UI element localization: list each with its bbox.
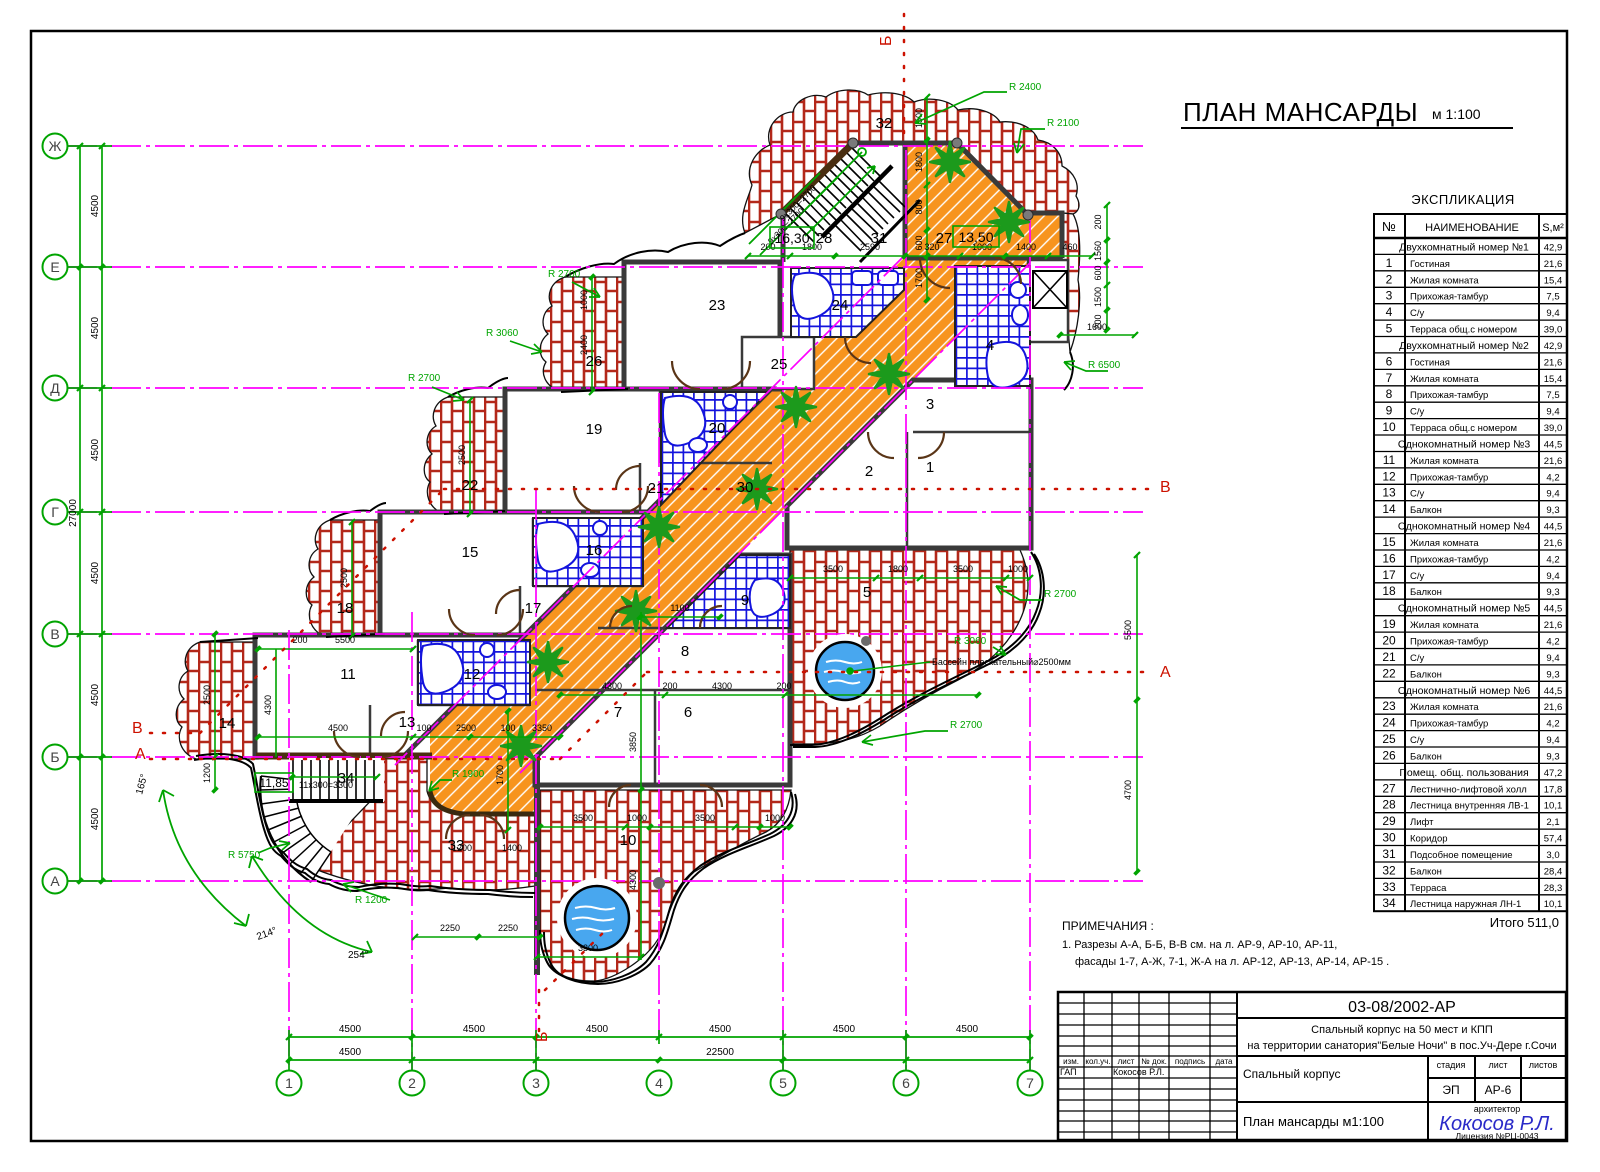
svg-text:№: № xyxy=(1382,219,1396,234)
svg-text:Спальный корпус на 50 мест и К: Спальный корпус на 50 мест и КПП xyxy=(1311,1024,1493,1036)
svg-text:15: 15 xyxy=(1382,535,1396,549)
svg-text:21,6: 21,6 xyxy=(1544,456,1563,467)
svg-text:4: 4 xyxy=(655,1075,663,1091)
svg-text:7: 7 xyxy=(614,704,622,721)
svg-text:Балкон: Балкон xyxy=(1410,866,1442,877)
svg-text:26: 26 xyxy=(586,353,603,370)
svg-text:4500: 4500 xyxy=(90,316,101,339)
svg-text:С/у: С/у xyxy=(1410,308,1425,319)
svg-text:13: 13 xyxy=(1382,486,1396,500)
svg-text:ПЛАН МАНСАРДЫ: ПЛАН МАНСАРДЫ xyxy=(1183,97,1418,127)
svg-text:В: В xyxy=(50,626,59,642)
svg-text:4500: 4500 xyxy=(328,723,348,733)
svg-text:214°: 214° xyxy=(255,925,278,942)
svg-text:2250: 2250 xyxy=(440,923,460,933)
svg-text:600: 600 xyxy=(914,235,924,250)
svg-text:4,2: 4,2 xyxy=(1546,637,1559,648)
svg-text:1600: 1600 xyxy=(1087,322,1107,332)
svg-text:изм.: изм. xyxy=(1063,1057,1079,1066)
svg-text:11: 11 xyxy=(1383,453,1396,467)
svg-text:Гостиная: Гостиная xyxy=(1410,259,1450,270)
svg-text:7,5: 7,5 xyxy=(1546,292,1559,303)
svg-text:А: А xyxy=(50,873,60,889)
svg-text:Кокосов Р.Л.: Кокосов Р.Л. xyxy=(1113,1067,1164,1077)
svg-text:29: 29 xyxy=(1382,814,1396,828)
svg-text:23: 23 xyxy=(1382,699,1396,713)
svg-text:12: 12 xyxy=(464,666,481,683)
svg-text:16: 16 xyxy=(1382,551,1396,565)
svg-text:стадия: стадия xyxy=(1437,1060,1466,1070)
svg-text:лист: лист xyxy=(1118,1057,1135,1066)
svg-text:R 1900: R 1900 xyxy=(452,769,485,780)
svg-text:3500: 3500 xyxy=(573,813,593,823)
svg-text:26: 26 xyxy=(1382,748,1396,762)
svg-text:Помещ. общ. пользования: Помещ. общ. пользования xyxy=(1399,767,1528,779)
svg-text:Б: Б xyxy=(534,1032,551,1043)
svg-text:24: 24 xyxy=(832,297,849,314)
svg-text:2: 2 xyxy=(865,463,873,480)
svg-text:Двухкомнатный номер №2: Двухкомнатный номер №2 xyxy=(1399,340,1529,352)
svg-text:3500: 3500 xyxy=(953,564,973,574)
svg-text:4500: 4500 xyxy=(90,807,101,830)
svg-text:Прихожая-тамбур: Прихожая-тамбур xyxy=(1410,292,1488,303)
svg-text:9,3: 9,3 xyxy=(1546,587,1559,598)
svg-text:16: 16 xyxy=(586,542,603,559)
svg-text:10: 10 xyxy=(620,832,637,849)
svg-text:57,4: 57,4 xyxy=(1544,834,1563,845)
svg-text:21,6: 21,6 xyxy=(1544,538,1563,549)
svg-text:ГАП: ГАП xyxy=(1060,1067,1077,1077)
svg-text:R 3060: R 3060 xyxy=(954,636,987,647)
svg-text:4500: 4500 xyxy=(833,1024,856,1035)
svg-text:3: 3 xyxy=(532,1075,540,1091)
svg-text:13,50: 13,50 xyxy=(958,229,993,245)
svg-text:30: 30 xyxy=(737,479,754,496)
svg-text:Жилая комната: Жилая комната xyxy=(1410,456,1479,467)
svg-text:3,0: 3,0 xyxy=(1546,850,1559,861)
svg-text:13: 13 xyxy=(399,714,416,731)
svg-text:600: 600 xyxy=(1093,265,1103,280)
svg-text:25: 25 xyxy=(771,356,788,373)
svg-text:1800: 1800 xyxy=(914,152,924,172)
svg-text:Г: Г xyxy=(51,504,59,520)
svg-text:21,6: 21,6 xyxy=(1544,259,1563,270)
svg-text:Прихожая-тамбур: Прихожая-тамбур xyxy=(1410,472,1488,483)
svg-text:22: 22 xyxy=(462,477,479,494)
svg-text:14: 14 xyxy=(219,715,236,732)
svg-text:10,1: 10,1 xyxy=(1544,801,1563,812)
svg-text:44,5: 44,5 xyxy=(1544,440,1563,451)
svg-text:2500: 2500 xyxy=(456,723,476,733)
svg-text:4700: 4700 xyxy=(1123,780,1133,800)
svg-text:254°: 254° xyxy=(348,950,369,961)
svg-text:Жилая комната: Жилая комната xyxy=(1410,275,1479,286)
svg-text:1100: 1100 xyxy=(670,603,689,613)
svg-text:9: 9 xyxy=(1386,404,1393,418)
svg-text:С/у: С/у xyxy=(1410,489,1425,500)
svg-text:2: 2 xyxy=(408,1075,416,1091)
svg-text:дата: дата xyxy=(1216,1057,1234,1066)
svg-text:15,4: 15,4 xyxy=(1544,374,1563,385)
svg-text:11,85: 11,85 xyxy=(259,776,288,790)
svg-text:39,0: 39,0 xyxy=(1544,325,1563,336)
svg-text:Д: Д xyxy=(50,380,60,396)
svg-text:листов: листов xyxy=(1529,1060,1558,1070)
svg-text:100: 100 xyxy=(500,723,515,733)
svg-text:19: 19 xyxy=(1382,617,1396,631)
svg-text:4,2: 4,2 xyxy=(1546,719,1559,730)
svg-text:Прихожая-тамбур: Прихожая-тамбур xyxy=(1410,554,1488,565)
svg-text:5: 5 xyxy=(863,584,871,601)
svg-text:2500: 2500 xyxy=(457,445,467,465)
svg-text:Коридор: Коридор xyxy=(1410,834,1448,845)
svg-text:4300: 4300 xyxy=(263,695,273,715)
svg-text:6: 6 xyxy=(684,704,692,721)
svg-text:2,1: 2,1 xyxy=(1546,817,1559,828)
svg-text:4,2: 4,2 xyxy=(1546,554,1559,565)
svg-text:4500: 4500 xyxy=(90,438,101,461)
svg-text:Двухкомнатный номер №1: Двухкомнатный номер №1 xyxy=(1399,241,1529,253)
svg-text:4500: 4500 xyxy=(90,683,101,706)
svg-text:Лестнично-лифтовой холл: Лестнично-лифтовой холл xyxy=(1410,784,1527,795)
svg-text:5500: 5500 xyxy=(335,635,355,645)
svg-text:39,0: 39,0 xyxy=(1544,423,1563,434)
svg-text:Лестница внутренняя ЛВ-1: Лестница внутренняя ЛВ-1 xyxy=(1410,801,1529,812)
svg-text:Балкон: Балкон xyxy=(1410,587,1442,598)
svg-text:28: 28 xyxy=(816,230,833,247)
svg-text:4500: 4500 xyxy=(339,1024,362,1035)
svg-text:В: В xyxy=(132,720,143,737)
svg-text:R 2700: R 2700 xyxy=(408,373,441,384)
svg-text:В: В xyxy=(1160,479,1171,496)
svg-text:1700: 1700 xyxy=(914,268,924,288)
svg-text:9,4: 9,4 xyxy=(1546,407,1559,418)
svg-text:Подсобное помещение: Подсобное помещение xyxy=(1410,850,1513,861)
svg-text:42,9: 42,9 xyxy=(1544,242,1563,253)
svg-text:Однокомнатный номер №3: Однокомнатный номер №3 xyxy=(1398,439,1531,451)
svg-text:План мансарды м1:100: План мансарды м1:100 xyxy=(1243,1114,1384,1129)
svg-text:20: 20 xyxy=(1382,634,1396,648)
svg-text:21,6: 21,6 xyxy=(1544,620,1563,631)
svg-text:5: 5 xyxy=(779,1075,787,1091)
svg-text:2: 2 xyxy=(1386,272,1393,286)
svg-text:24: 24 xyxy=(1382,716,1396,730)
svg-text:R 2400: R 2400 xyxy=(1009,82,1042,93)
svg-text:АР-6: АР-6 xyxy=(1485,1083,1512,1097)
svg-text:12: 12 xyxy=(1382,469,1396,483)
svg-text:Прихожая-тамбур: Прихожая-тамбур xyxy=(1410,390,1488,401)
svg-text:4500: 4500 xyxy=(90,194,101,217)
svg-text:32: 32 xyxy=(876,115,893,132)
svg-text:R 3060: R 3060 xyxy=(486,328,519,339)
svg-text:3500: 3500 xyxy=(695,813,715,823)
svg-text:03-08/2002-АР: 03-08/2002-АР xyxy=(1348,999,1456,1016)
svg-text:4500: 4500 xyxy=(586,1024,609,1035)
svg-text:лист: лист xyxy=(1489,1060,1508,1070)
svg-text:4,2: 4,2 xyxy=(1546,472,1559,483)
svg-text:17: 17 xyxy=(1382,568,1396,582)
svg-text:ЭП: ЭП xyxy=(1442,1083,1459,1097)
svg-text:Жилая комната: Жилая комната xyxy=(1410,702,1479,713)
svg-text:23: 23 xyxy=(709,297,726,314)
svg-text:33: 33 xyxy=(1382,880,1396,894)
svg-text:4500: 4500 xyxy=(90,561,101,584)
svg-text:8: 8 xyxy=(681,643,689,660)
svg-text:1560: 1560 xyxy=(1093,241,1103,261)
svg-text:Бассейн плескательный⌀2500мм: Бассейн плескательный⌀2500мм xyxy=(932,657,1071,667)
svg-text:1000: 1000 xyxy=(1008,564,1028,574)
svg-text:18: 18 xyxy=(1382,584,1396,598)
svg-text:Терраса общ.с номером: Терраса общ.с номером xyxy=(1410,325,1517,336)
svg-text:200: 200 xyxy=(776,681,791,691)
svg-text:9,4: 9,4 xyxy=(1546,571,1559,582)
svg-text:фасады 1-7, А-Ж, 7-1, Ж-А на л: фасады 1-7, А-Ж, 7-1, Ж-А на л. АР-12, А… xyxy=(1075,956,1389,968)
svg-text:1: 1 xyxy=(926,459,934,476)
svg-text:32: 32 xyxy=(1382,863,1396,877)
svg-text:Балкон: Балкон xyxy=(1410,751,1442,762)
svg-text:2250: 2250 xyxy=(498,923,518,933)
svg-text:Жилая комната: Жилая комната xyxy=(1410,374,1479,385)
svg-text:21,6: 21,6 xyxy=(1544,357,1563,368)
svg-text:31: 31 xyxy=(871,230,888,247)
svg-text:8: 8 xyxy=(1386,387,1393,401)
svg-text:27000: 27000 xyxy=(68,499,79,527)
svg-text:6: 6 xyxy=(1386,354,1393,368)
svg-text:4300: 4300 xyxy=(602,681,622,691)
svg-text:15: 15 xyxy=(462,544,479,561)
svg-text:Лицензия №РЦ-0043: Лицензия №РЦ-0043 xyxy=(1456,1131,1539,1141)
svg-text:165°: 165° xyxy=(134,773,150,796)
svg-text:1700: 1700 xyxy=(495,765,505,785)
svg-text:2400: 2400 xyxy=(579,335,589,355)
svg-text:9,4: 9,4 xyxy=(1546,489,1559,500)
svg-text:м 1:100: м 1:100 xyxy=(1432,106,1481,122)
svg-text:16,30: 16,30 xyxy=(774,230,809,246)
svg-text:Жилая комната: Жилая комната xyxy=(1410,538,1479,549)
svg-text:3850: 3850 xyxy=(628,732,638,752)
svg-text:Однокомнатный номер №4: Однокомнатный номер №4 xyxy=(1398,521,1531,533)
svg-text:Лифт: Лифт xyxy=(1410,817,1434,828)
svg-text:НАИМЕНОВАНИЕ: НАИМЕНОВАНИЕ xyxy=(1425,222,1519,234)
svg-text:31: 31 xyxy=(1382,847,1396,861)
svg-text:21: 21 xyxy=(648,480,665,497)
svg-text:1. Разрезы А-А, Б-Б, В-В см.: 1. Разрезы А-А, Б-Б, В-В см. на л. АР-9,… xyxy=(1062,939,1337,951)
svg-text:9,3: 9,3 xyxy=(1546,505,1559,516)
svg-text:18: 18 xyxy=(337,600,354,617)
svg-text:21,6: 21,6 xyxy=(1544,702,1563,713)
svg-text:S,м²: S,м² xyxy=(1542,222,1564,234)
svg-text:С/у: С/у xyxy=(1410,407,1425,418)
svg-text:1: 1 xyxy=(285,1075,293,1091)
svg-text:28,4: 28,4 xyxy=(1544,866,1563,877)
svg-text:подпись: подпись xyxy=(1175,1057,1205,1066)
svg-text:21: 21 xyxy=(1382,650,1396,664)
svg-text:Спальный корпус: Спальный корпус xyxy=(1243,1067,1340,1081)
svg-text:17,8: 17,8 xyxy=(1544,784,1563,795)
svg-text:30: 30 xyxy=(1382,831,1396,845)
svg-text:200: 200 xyxy=(662,681,677,691)
svg-text:1000: 1000 xyxy=(627,813,647,823)
svg-text:5: 5 xyxy=(1386,322,1393,336)
svg-text:Прихожая-тамбур: Прихожая-тамбур xyxy=(1410,637,1488,648)
svg-text:9: 9 xyxy=(741,592,749,609)
svg-text:47,2: 47,2 xyxy=(1544,768,1563,779)
svg-text:Жилая комната: Жилая комната xyxy=(1410,620,1479,631)
svg-text:7: 7 xyxy=(1026,1075,1034,1091)
svg-text:Балкон: Балкон xyxy=(1410,669,1442,680)
svg-text:1800: 1800 xyxy=(888,564,908,574)
svg-text:Б: Б xyxy=(878,36,895,47)
svg-text:Балкон: Балкон xyxy=(1410,505,1442,516)
svg-text:22500: 22500 xyxy=(706,1047,734,1058)
svg-text:9,4: 9,4 xyxy=(1546,308,1559,319)
svg-text:А: А xyxy=(135,746,146,763)
svg-text:200: 200 xyxy=(292,635,307,645)
svg-text:28: 28 xyxy=(1382,798,1396,812)
svg-text:100: 100 xyxy=(416,723,431,733)
svg-text:Гостиная: Гостиная xyxy=(1410,357,1450,368)
svg-text:7,5: 7,5 xyxy=(1546,390,1559,401)
svg-text:4500: 4500 xyxy=(463,1024,486,1035)
svg-text:4: 4 xyxy=(986,337,994,354)
svg-text:200: 200 xyxy=(1093,214,1103,229)
svg-text:3500: 3500 xyxy=(823,564,843,574)
svg-text:R 5750: R 5750 xyxy=(228,850,261,861)
svg-text:14: 14 xyxy=(1382,502,1396,516)
svg-text:№ док.: № док. xyxy=(1141,1057,1167,1066)
svg-text:Однокомнатный номер №6: Однокомнатный номер №6 xyxy=(1398,685,1531,697)
svg-text:44,5: 44,5 xyxy=(1544,604,1563,615)
svg-text:34: 34 xyxy=(338,770,355,787)
svg-text:1400: 1400 xyxy=(1016,242,1036,252)
svg-text:27: 27 xyxy=(1382,781,1396,795)
svg-text:Терраса общ.с номером: Терраса общ.с номером xyxy=(1410,423,1517,434)
svg-text:1200: 1200 xyxy=(202,763,212,783)
svg-text:1000: 1000 xyxy=(579,290,589,310)
svg-text:Итого 511,0: Итого 511,0 xyxy=(1490,915,1559,930)
svg-text:17: 17 xyxy=(525,600,542,617)
svg-text:4500: 4500 xyxy=(339,1047,362,1058)
svg-text:800: 800 xyxy=(914,199,924,214)
svg-text:4500: 4500 xyxy=(709,1024,732,1035)
svg-text:R 2100: R 2100 xyxy=(1047,118,1080,129)
svg-text:Лестница наружная ЛН-1: Лестница наружная ЛН-1 xyxy=(1410,899,1521,910)
svg-text:4300: 4300 xyxy=(712,681,732,691)
svg-text:4: 4 xyxy=(1386,305,1393,319)
svg-text:10,1: 10,1 xyxy=(1544,899,1563,910)
svg-text:R 2700: R 2700 xyxy=(950,720,983,731)
svg-text:19: 19 xyxy=(586,421,603,438)
svg-text:А: А xyxy=(1160,664,1171,681)
svg-text:42,9: 42,9 xyxy=(1544,341,1563,352)
svg-text:9,3: 9,3 xyxy=(1546,669,1559,680)
svg-text:1000: 1000 xyxy=(765,813,785,823)
svg-text:R 2700: R 2700 xyxy=(1044,589,1077,600)
svg-text:460: 460 xyxy=(1062,242,1077,252)
svg-text:Е: Е xyxy=(50,259,59,275)
svg-text:33: 33 xyxy=(448,837,465,854)
svg-text:3: 3 xyxy=(926,396,934,413)
svg-text:3300: 3300 xyxy=(578,943,598,953)
svg-text:3: 3 xyxy=(1386,289,1393,303)
svg-text:28,3: 28,3 xyxy=(1544,883,1563,894)
svg-text:5500: 5500 xyxy=(1123,620,1133,640)
svg-text:3350: 3350 xyxy=(532,723,552,733)
svg-text:22: 22 xyxy=(1382,666,1396,680)
svg-text:1500: 1500 xyxy=(1093,287,1103,307)
svg-text:2500: 2500 xyxy=(202,685,212,705)
svg-text:Ж: Ж xyxy=(49,138,62,154)
svg-text:Однокомнатный номер №5: Однокомнатный номер №5 xyxy=(1398,603,1531,615)
svg-text:10: 10 xyxy=(1382,420,1396,434)
svg-text:11: 11 xyxy=(340,666,356,683)
svg-text:4500: 4500 xyxy=(956,1024,979,1035)
svg-text:кол.уч.: кол.уч. xyxy=(1085,1057,1110,1066)
svg-text:С/у: С/у xyxy=(1410,735,1425,746)
svg-text:7: 7 xyxy=(1386,371,1393,385)
svg-text:С/у: С/у xyxy=(1410,571,1425,582)
svg-text:Прихожая-тамбур: Прихожая-тамбур xyxy=(1410,719,1488,730)
svg-text:9,4: 9,4 xyxy=(1546,735,1559,746)
svg-text:Терраса: Терраса xyxy=(1410,883,1447,894)
svg-text:27: 27 xyxy=(936,230,953,247)
svg-text:Б: Б xyxy=(50,749,59,765)
svg-text:20: 20 xyxy=(709,420,726,437)
svg-text:25: 25 xyxy=(1382,732,1396,746)
svg-text:С/у: С/у xyxy=(1410,653,1425,664)
svg-text:9,3: 9,3 xyxy=(1546,751,1559,762)
svg-text:44,5: 44,5 xyxy=(1544,686,1563,697)
svg-text:34: 34 xyxy=(1382,896,1396,910)
svg-text:ПРИМЕЧАНИЯ :: ПРИМЕЧАНИЯ : xyxy=(1062,919,1154,933)
svg-text:9,4: 9,4 xyxy=(1546,653,1559,664)
svg-text:ЭКСПЛИКАЦИЯ: ЭКСПЛИКАЦИЯ xyxy=(1411,192,1514,207)
svg-text:R 1200: R 1200 xyxy=(355,895,388,906)
svg-text:R 2700: R 2700 xyxy=(548,269,581,280)
svg-text:6: 6 xyxy=(902,1075,910,1091)
svg-text:на территории санатория"Белые: на территории санатория"Белые Ночи" в по… xyxy=(1247,1040,1556,1052)
svg-text:15,4: 15,4 xyxy=(1544,275,1563,286)
svg-text:1400: 1400 xyxy=(502,843,522,853)
svg-text:R 6500: R 6500 xyxy=(1088,360,1121,371)
svg-text:1: 1 xyxy=(1386,256,1393,270)
svg-text:4300: 4300 xyxy=(628,870,638,890)
svg-text:44,5: 44,5 xyxy=(1544,522,1563,533)
